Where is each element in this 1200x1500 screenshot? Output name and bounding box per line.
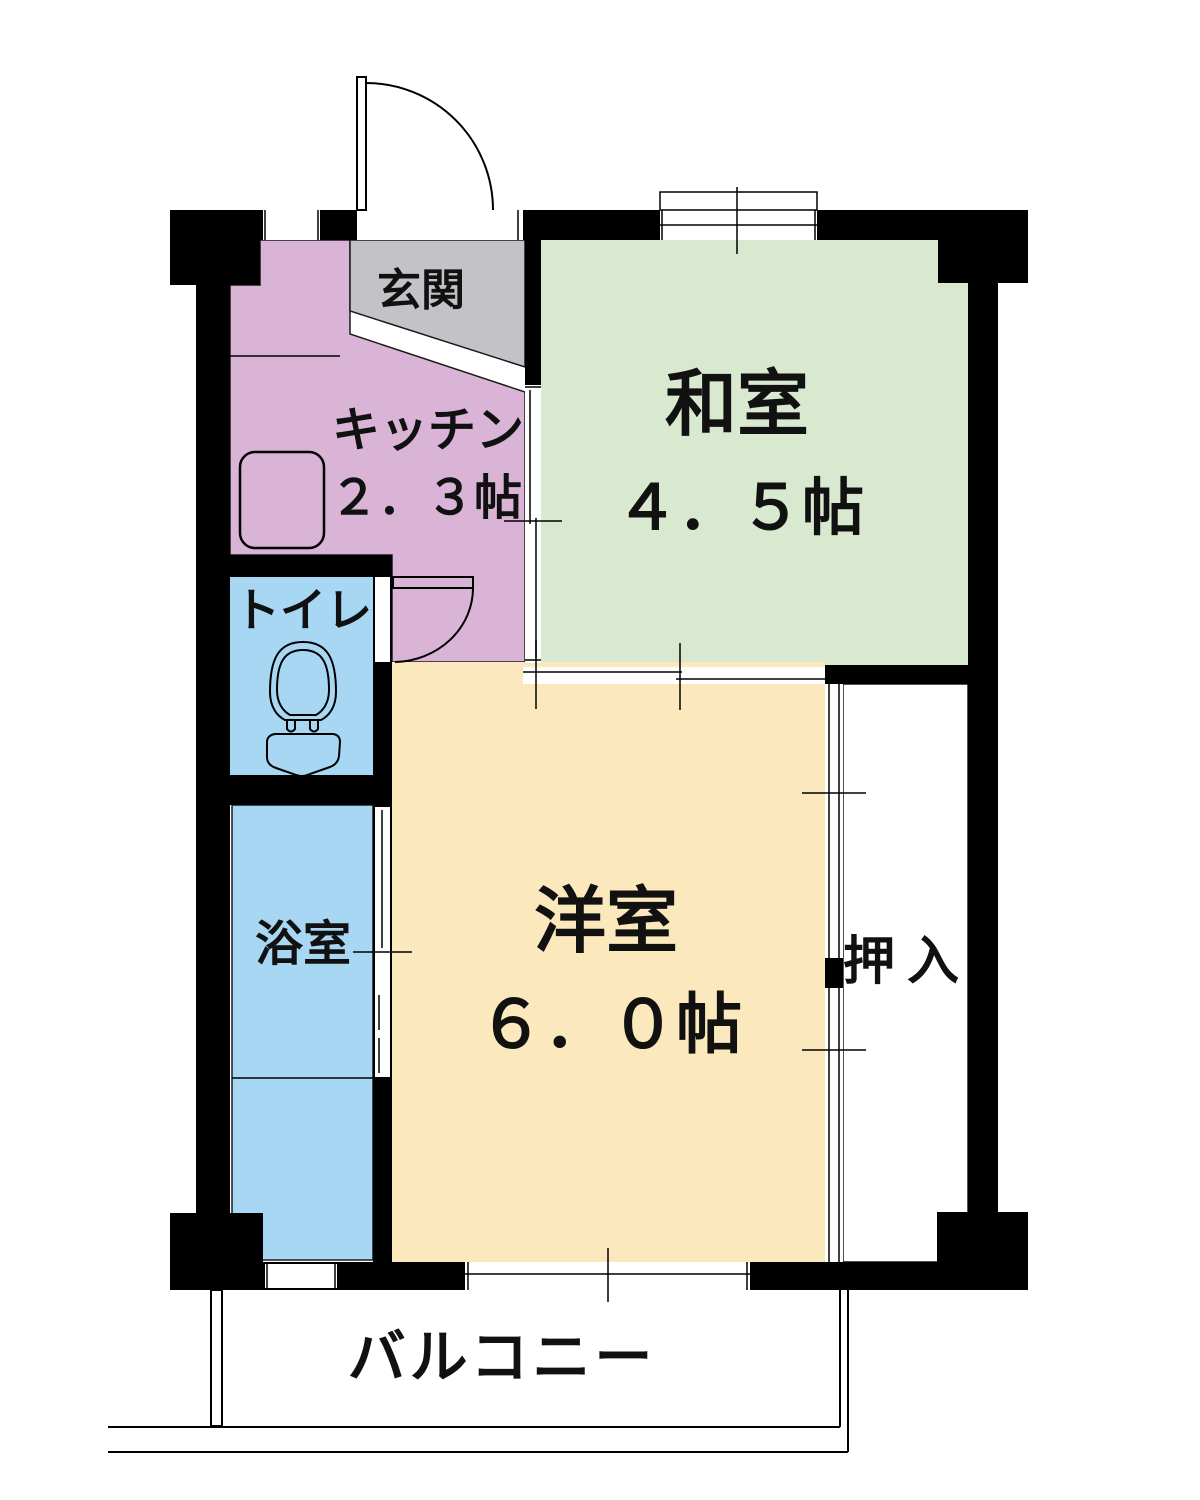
room-label-washitsu: 和室 (665, 369, 809, 441)
room-label-balcony: バルコニー (348, 1329, 657, 1387)
room-washitsu-floor (541, 240, 968, 667)
room-label-yoshitsu: 洋室 (534, 886, 678, 958)
entrance-opening (357, 210, 523, 240)
wall-kitchen-toilet (230, 555, 392, 577)
room-label-oshiire: 押入 (843, 936, 971, 988)
floor-plan: 玄関 キッチン ２．３帖 和室 ４．５帖 トイレ 浴室 洋室 ６．０帖 押入 バ… (0, 0, 1200, 1500)
room-label-genkan: 玄関 (377, 269, 465, 313)
room-label-kitchen: キッチン (332, 407, 524, 455)
wall-genkan-washitsu (525, 210, 541, 385)
room-label-toilet: トイレ (234, 587, 372, 633)
washitsu-west-door (525, 385, 541, 663)
floor-plan-drawing (0, 0, 1200, 1500)
wall-toilet-bath (196, 775, 392, 805)
wall-oshiire-top (825, 665, 968, 684)
room-size-kitchen: ２．３帖 (330, 475, 522, 523)
room-bath-floor (232, 805, 373, 1260)
room-size-yoshitsu: ６．０帖 (478, 991, 742, 1057)
kitchen-window (263, 210, 320, 240)
wall-left (196, 240, 230, 1215)
room-yoshitsu-floor (392, 662, 825, 1262)
wall-right (968, 240, 998, 1262)
bath-window (265, 1264, 337, 1288)
washitsu-yoshitsu-fusuma (523, 667, 825, 684)
room-size-washitsu: ４．５帖 (616, 478, 864, 540)
room-label-bath: 浴室 (255, 921, 351, 969)
wall-corner-bottom-right (937, 1212, 1028, 1290)
oshiire-door-handle (825, 958, 843, 988)
toilet-door-opening (375, 577, 390, 662)
